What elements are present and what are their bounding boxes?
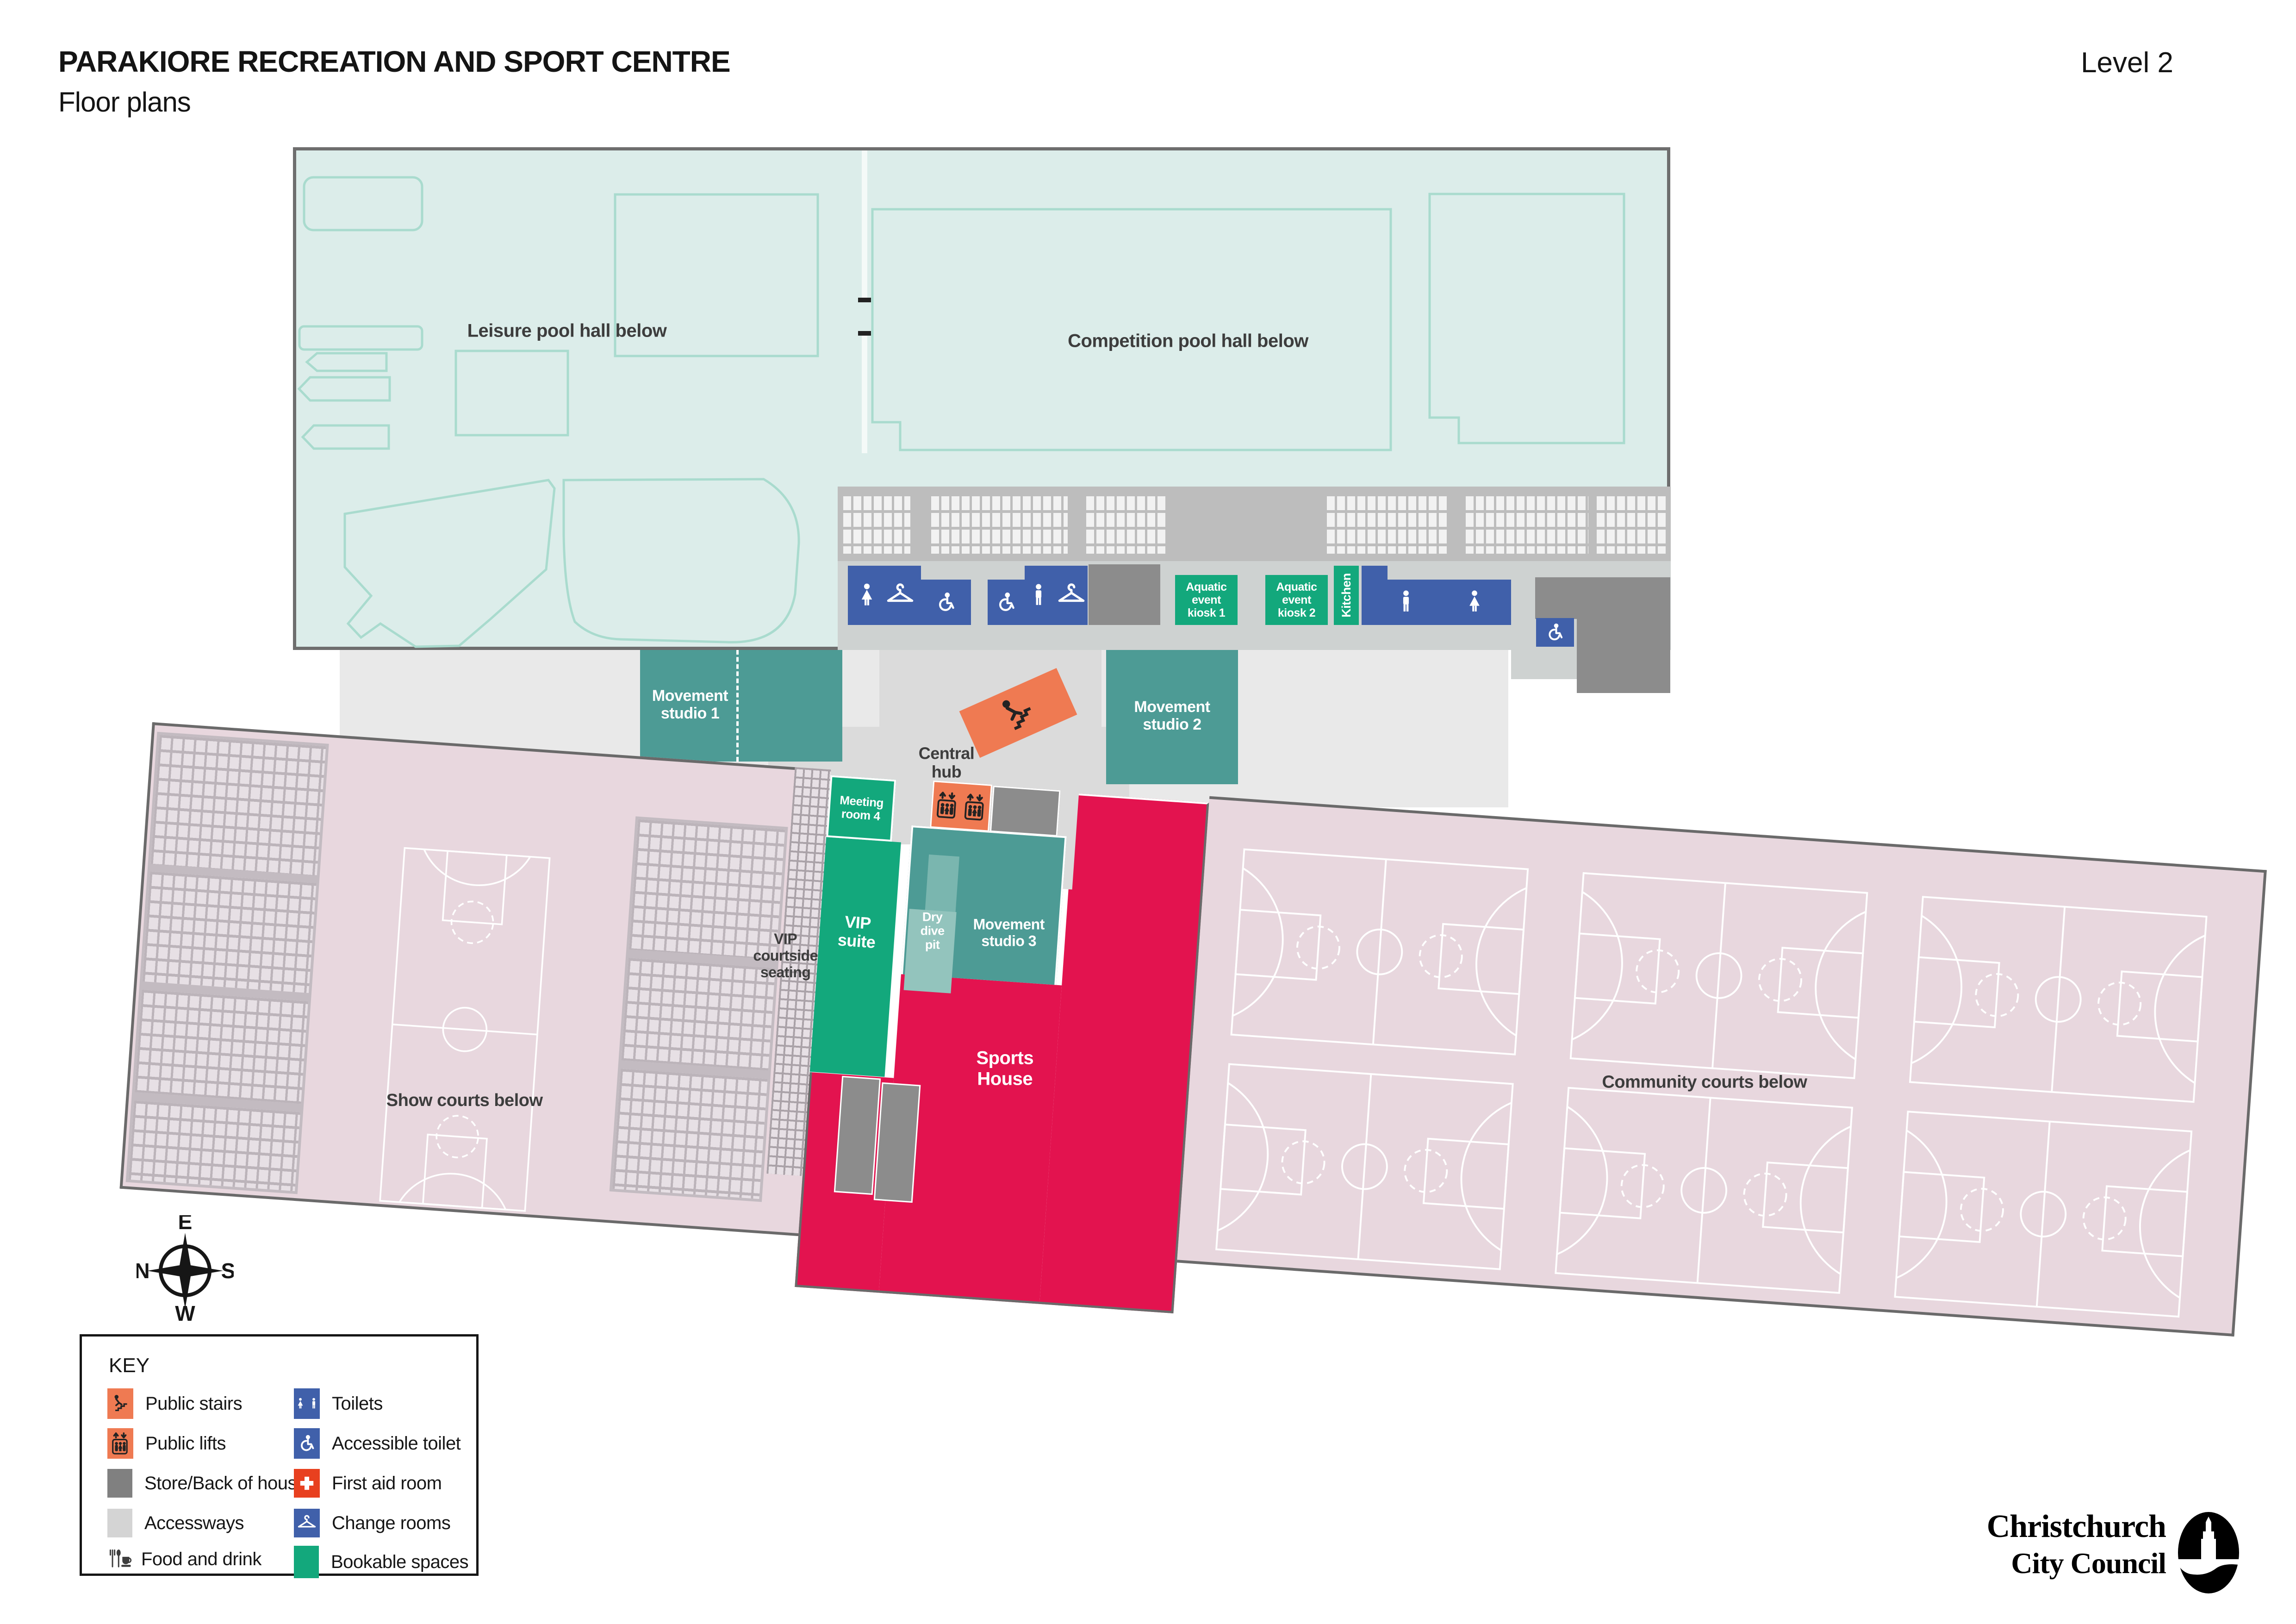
level-label: Level 2 (2081, 46, 2173, 79)
female-change-rooms (848, 566, 921, 625)
key-label: Store/Back of house (144, 1473, 307, 1494)
key-accessways: Accessways (107, 1509, 244, 1537)
seat-block (929, 493, 1068, 554)
stairs-icon (993, 688, 1043, 737)
accessible-toilet (1536, 618, 1574, 647)
leisure-pool-label: Leisure pool hall below (467, 321, 667, 342)
meeting-room4-label: Meeting room 4 (838, 793, 884, 824)
back-of-house-upper (1535, 577, 1670, 620)
first-aid-room-icon (294, 1469, 320, 1498)
pool-spectator-seating (838, 487, 1671, 561)
change-rooms-icon (294, 1509, 320, 1537)
key-change-rooms: Change rooms (294, 1509, 450, 1537)
studio1-label: Movement studio 1 (652, 687, 728, 722)
key-bookable: Bookable spaces (294, 1546, 468, 1578)
logo-line2: City Council (2011, 1546, 2166, 1580)
movement-studio-2: Movement studio 2 (1106, 650, 1238, 784)
accessways-swatch (107, 1509, 132, 1537)
kitchen: Kitchen (1334, 566, 1359, 625)
central-hub-label: Central hub (919, 744, 975, 782)
studio1-divider (736, 650, 739, 762)
seat-block (129, 1100, 300, 1191)
lift-icon (963, 793, 988, 822)
accessible-icon (996, 592, 1016, 612)
christchurch-city-council-logo: Christchurch City Council (1958, 1508, 2245, 1601)
key-accessible-toilet: Accessible toilet (294, 1428, 460, 1459)
woman-icon (1462, 590, 1487, 614)
key-label: Change rooms (332, 1513, 450, 1534)
public-toilets (1362, 580, 1511, 625)
seat-block (1325, 493, 1447, 554)
seat-block (841, 493, 910, 554)
store-room (834, 1076, 881, 1195)
accessible-icon (1546, 623, 1564, 642)
vip-courtside-label: VIP courtside seating (753, 931, 818, 981)
public-lifts (930, 781, 992, 832)
key-label: Food and drink (141, 1549, 261, 1570)
hanger-icon (886, 581, 915, 610)
floor-plan-page: PARAKIORE RECREATION AND SPORT CENTRE Fl… (0, 0, 2296, 1624)
lift-icon (935, 791, 960, 820)
key-food-drink: Food and drink (104, 1549, 261, 1570)
seat-block (622, 958, 776, 1071)
public-lifts-icon (107, 1428, 133, 1459)
key-toilets: Toilets (294, 1388, 383, 1419)
vip-suite: VIP suite (810, 837, 901, 1077)
pool-hall-building: Leisure pool hall below Competition pool… (293, 147, 1670, 650)
key-label: Public stairs (145, 1393, 242, 1414)
key-label: Accessible toilet (332, 1433, 460, 1454)
seat-block (1463, 493, 1588, 554)
store-room (874, 1082, 921, 1203)
key-legend: KEY Public stairs Public lifts Store/Bac… (80, 1334, 479, 1576)
movement-studio-1: Movement studio 1 (640, 650, 842, 762)
back-of-house-lower (1577, 619, 1670, 693)
key-label: Accessways (144, 1513, 244, 1534)
compass-e: E (178, 1215, 193, 1234)
community-courts-label: Community courts below (1602, 1073, 1807, 1093)
key-first-aid: First aid room (294, 1469, 442, 1498)
bookable-spaces-swatch (294, 1546, 319, 1578)
key-store: Store/Back of house (107, 1469, 307, 1498)
vip-suite-label: VIP suite (837, 912, 877, 952)
store-back-of-house-swatch (107, 1469, 132, 1498)
compass-n: N (137, 1259, 150, 1283)
key-label: Public lifts (145, 1433, 226, 1454)
kiosk1-label: Aquatic event kiosk 1 (1186, 581, 1226, 619)
male-accessible-change (988, 580, 1025, 625)
compass-w: W (175, 1301, 195, 1322)
toilets-icon (294, 1388, 320, 1419)
sports-house-label: Sports House (976, 1048, 1033, 1090)
male-change-rooms (1025, 566, 1088, 625)
studio2-label: Movement studio 2 (1134, 698, 1210, 733)
toilets-step (1362, 566, 1388, 581)
pool-store-back-of-house (1089, 564, 1160, 625)
aquatic-event-kiosk-1: Aquatic event kiosk 1 (1175, 575, 1238, 625)
cathedral-icon (2177, 1511, 2240, 1594)
south-building: Show courts below VIP courtside seating … (115, 722, 2271, 1406)
compass-rose: E S W N (137, 1215, 234, 1322)
hanger-icon (1057, 581, 1086, 610)
man-icon (1027, 583, 1051, 607)
hub-store (990, 786, 1061, 837)
key-public-lifts: Public lifts (107, 1428, 226, 1459)
man-icon (1394, 590, 1418, 614)
seat-block (1594, 493, 1668, 554)
seat-block (151, 735, 326, 875)
food-and-drink-icon (104, 1549, 135, 1570)
key-label: Toilets (332, 1393, 383, 1414)
public-stairs-icon (107, 1388, 133, 1419)
studio3-label: Movement studio 3 (973, 916, 1045, 949)
show-courts-label: Show courts below (386, 1091, 543, 1111)
dry-dive-pit-upper (925, 855, 959, 913)
key-title: KEY (109, 1354, 149, 1377)
seat-block (612, 1068, 767, 1199)
key-label: Bookable spaces (331, 1552, 468, 1573)
aquatic-event-kiosk-2: Aquatic event kiosk 2 (1265, 575, 1328, 625)
page-subtitle: Floor plans (58, 86, 191, 118)
show-courts-east-seating (610, 816, 788, 1202)
accessible-toilet-icon (294, 1428, 320, 1459)
seat-block (135, 990, 308, 1104)
show-court-markings (379, 847, 551, 1212)
logo-line1: Christchurch (1987, 1508, 2166, 1545)
key-label: First aid room (332, 1473, 442, 1494)
seat-block (1084, 493, 1167, 554)
woman-icon (854, 583, 879, 608)
page-title: PARAKIORE RECREATION AND SPORT CENTRE (58, 44, 730, 79)
compass-s: S (221, 1259, 234, 1283)
dry-dive-pit-label: Dry dive pit (921, 910, 945, 952)
seat-block (143, 871, 317, 993)
kiosk2-label: Aquatic event kiosk 2 (1276, 581, 1317, 619)
key-public-stairs: Public stairs (107, 1388, 242, 1419)
kitchen-label: Kitchen (1339, 573, 1353, 618)
competition-pool-label: Competition pool hall below (1068, 331, 1308, 352)
meeting-room-4: Meeting room 4 (826, 775, 896, 842)
show-courts-west-seating (126, 732, 329, 1194)
accessible-icon (936, 592, 956, 612)
female-accessible-change (921, 580, 971, 625)
community-court-markings (1177, 796, 2267, 1337)
